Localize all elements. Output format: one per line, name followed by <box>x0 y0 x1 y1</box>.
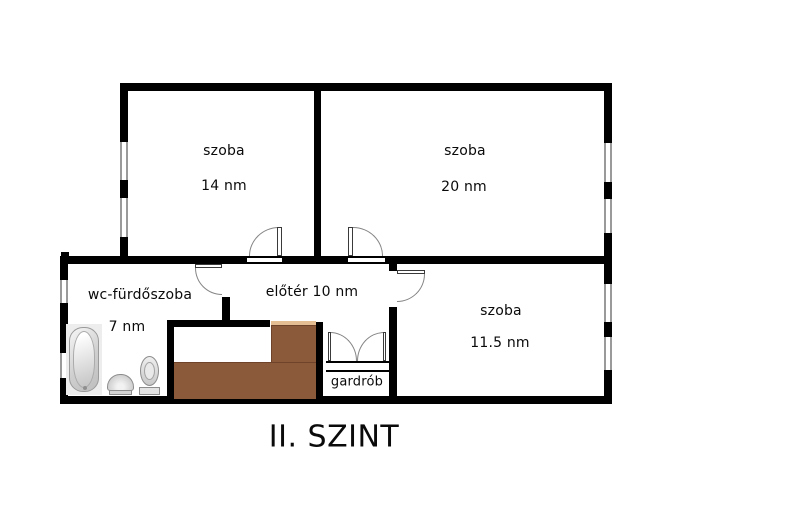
wall-stairs-top <box>167 320 270 327</box>
wall-right-lower-2 <box>604 322 612 337</box>
window-left-lower-1 <box>60 280 68 303</box>
room20-label-area: 20 nm <box>441 179 487 195</box>
window-right-lower-1 <box>604 284 612 322</box>
room14-label-area: 14 nm <box>201 178 247 194</box>
door-threshold-room20 <box>348 256 385 264</box>
wall-hall-room-1 <box>389 264 397 271</box>
window-right-upper-1 <box>604 143 612 182</box>
floor-title: II. SZINT <box>269 420 399 455</box>
toilet-tank <box>139 387 160 395</box>
wall-right-upper-2 <box>604 182 612 199</box>
wall-top <box>120 83 612 91</box>
hall-label: előtér 10 nm <box>266 284 359 300</box>
sink-icon <box>107 374 134 391</box>
wardrobe-door-arc-right <box>357 332 384 361</box>
door-arc-bathroom <box>195 268 222 295</box>
wall-corner-notch <box>61 252 69 258</box>
wall-mid-3 <box>385 256 612 264</box>
sink-base <box>109 390 132 395</box>
wall-left-upper-2 <box>120 180 128 198</box>
wall-right-upper-3 <box>604 233 612 256</box>
wardrobe-door-arc-left <box>330 332 357 361</box>
wall-mid-2 <box>282 256 348 264</box>
wall-right-lower-1 <box>604 264 612 284</box>
window-left-upper-1 <box>120 142 128 180</box>
bathtub-icon <box>69 327 99 392</box>
window-right-upper-2 <box>604 199 612 233</box>
wall-left-upper-3 <box>120 237 128 256</box>
room14-label-name: szoba <box>203 143 245 159</box>
floorplan-canvas: szoba 14 nm szoba 20 nm wc-fürdőszoba 7 … <box>0 0 800 531</box>
door-arc-room14 <box>249 227 279 256</box>
wall-right-lower-3 <box>604 370 612 396</box>
wall-left-lower-1 <box>60 264 68 280</box>
bathroom-label-area: 7 nm <box>109 319 146 335</box>
wall-stairs-right <box>316 322 323 396</box>
wardrobe-threshold <box>326 361 389 372</box>
wall-right-upper-1 <box>604 91 612 143</box>
room115-label-name: szoba <box>480 303 522 319</box>
bathtub-inner <box>73 331 95 388</box>
door-leaf-room20 <box>348 227 353 256</box>
bathtub-drain <box>83 386 87 390</box>
bathroom-label-name: wc-fürdőszoba <box>88 287 192 303</box>
toilet-inner <box>144 362 155 380</box>
wall-divider-rooms <box>314 91 321 256</box>
wardrobe-label: gardrób <box>331 375 383 390</box>
wall-mid-1 <box>60 256 247 264</box>
wardrobe-door-leaf-left <box>328 332 331 361</box>
window-left-upper-2 <box>120 198 128 237</box>
door-arc-room115 <box>397 274 425 302</box>
wall-stairs-left <box>167 327 174 396</box>
window-right-lower-2 <box>604 337 612 370</box>
wall-bottom <box>60 396 612 404</box>
room20-label-name: szoba <box>444 143 486 159</box>
door-leaf-room14 <box>277 227 282 256</box>
door-arc-room20 <box>353 227 383 256</box>
wall-hall-room-2 <box>389 307 397 396</box>
room115-label-area: 11.5 nm <box>470 335 530 351</box>
wardrobe-door-leaf-right <box>383 332 386 361</box>
door-threshold-room14 <box>247 256 282 264</box>
wall-left-upper-1 <box>120 91 128 142</box>
toilet-icon <box>140 356 159 386</box>
stairs-lower-flight <box>174 362 316 399</box>
